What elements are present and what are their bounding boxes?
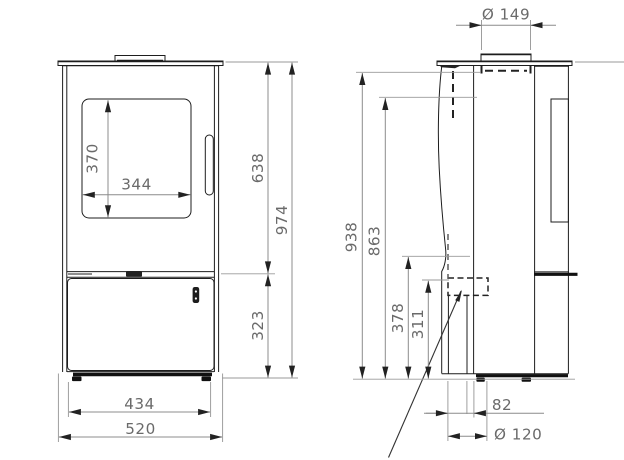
- door-handle: [205, 135, 213, 195]
- door-latch: [126, 271, 142, 277]
- dim-label-82: 82: [492, 396, 512, 414]
- dim-label-120: Ø 120: [494, 426, 542, 444]
- dim-label-638: 638: [249, 153, 267, 184]
- dim-label-938: 938: [343, 222, 361, 253]
- dim-label-323: 323: [249, 310, 267, 341]
- dim-label-149: Ø 149: [482, 6, 530, 24]
- front-view: [58, 56, 223, 382]
- brand-emblem: [193, 287, 200, 303]
- foot-front-side: [476, 378, 484, 382]
- technical-drawing-stove: 370 344 638 974 323 434 520: [0, 0, 624, 460]
- side-view: [389, 54, 578, 458]
- dim-label-344: 344: [121, 176, 152, 194]
- emblem-dot-bottom: [195, 297, 197, 299]
- plate-front-lip: [440, 66, 461, 69]
- dim-label-974: 974: [273, 205, 291, 236]
- base-door-panel: [68, 279, 215, 371]
- dim-label-520: 520: [125, 420, 156, 438]
- emblem-dot-top: [195, 290, 197, 292]
- dim-label-434: 434: [124, 395, 155, 413]
- dim-label-311: 311: [409, 309, 427, 340]
- front-view-dimensions: 370 344 638 974 323 434 520: [58, 62, 298, 442]
- air-inlet-hidden-rect: [448, 278, 488, 295]
- rear-recess-panel: [551, 99, 568, 222]
- drawing-canvas: 370 344 638 974 323 434 520: [0, 0, 624, 460]
- foot-right: [202, 377, 212, 382]
- dim-label-370: 370: [84, 143, 102, 174]
- dim-label-863: 863: [366, 226, 384, 257]
- foot-rear-side: [522, 378, 531, 382]
- dim-label-378: 378: [389, 303, 407, 334]
- foot-left: [72, 377, 82, 382]
